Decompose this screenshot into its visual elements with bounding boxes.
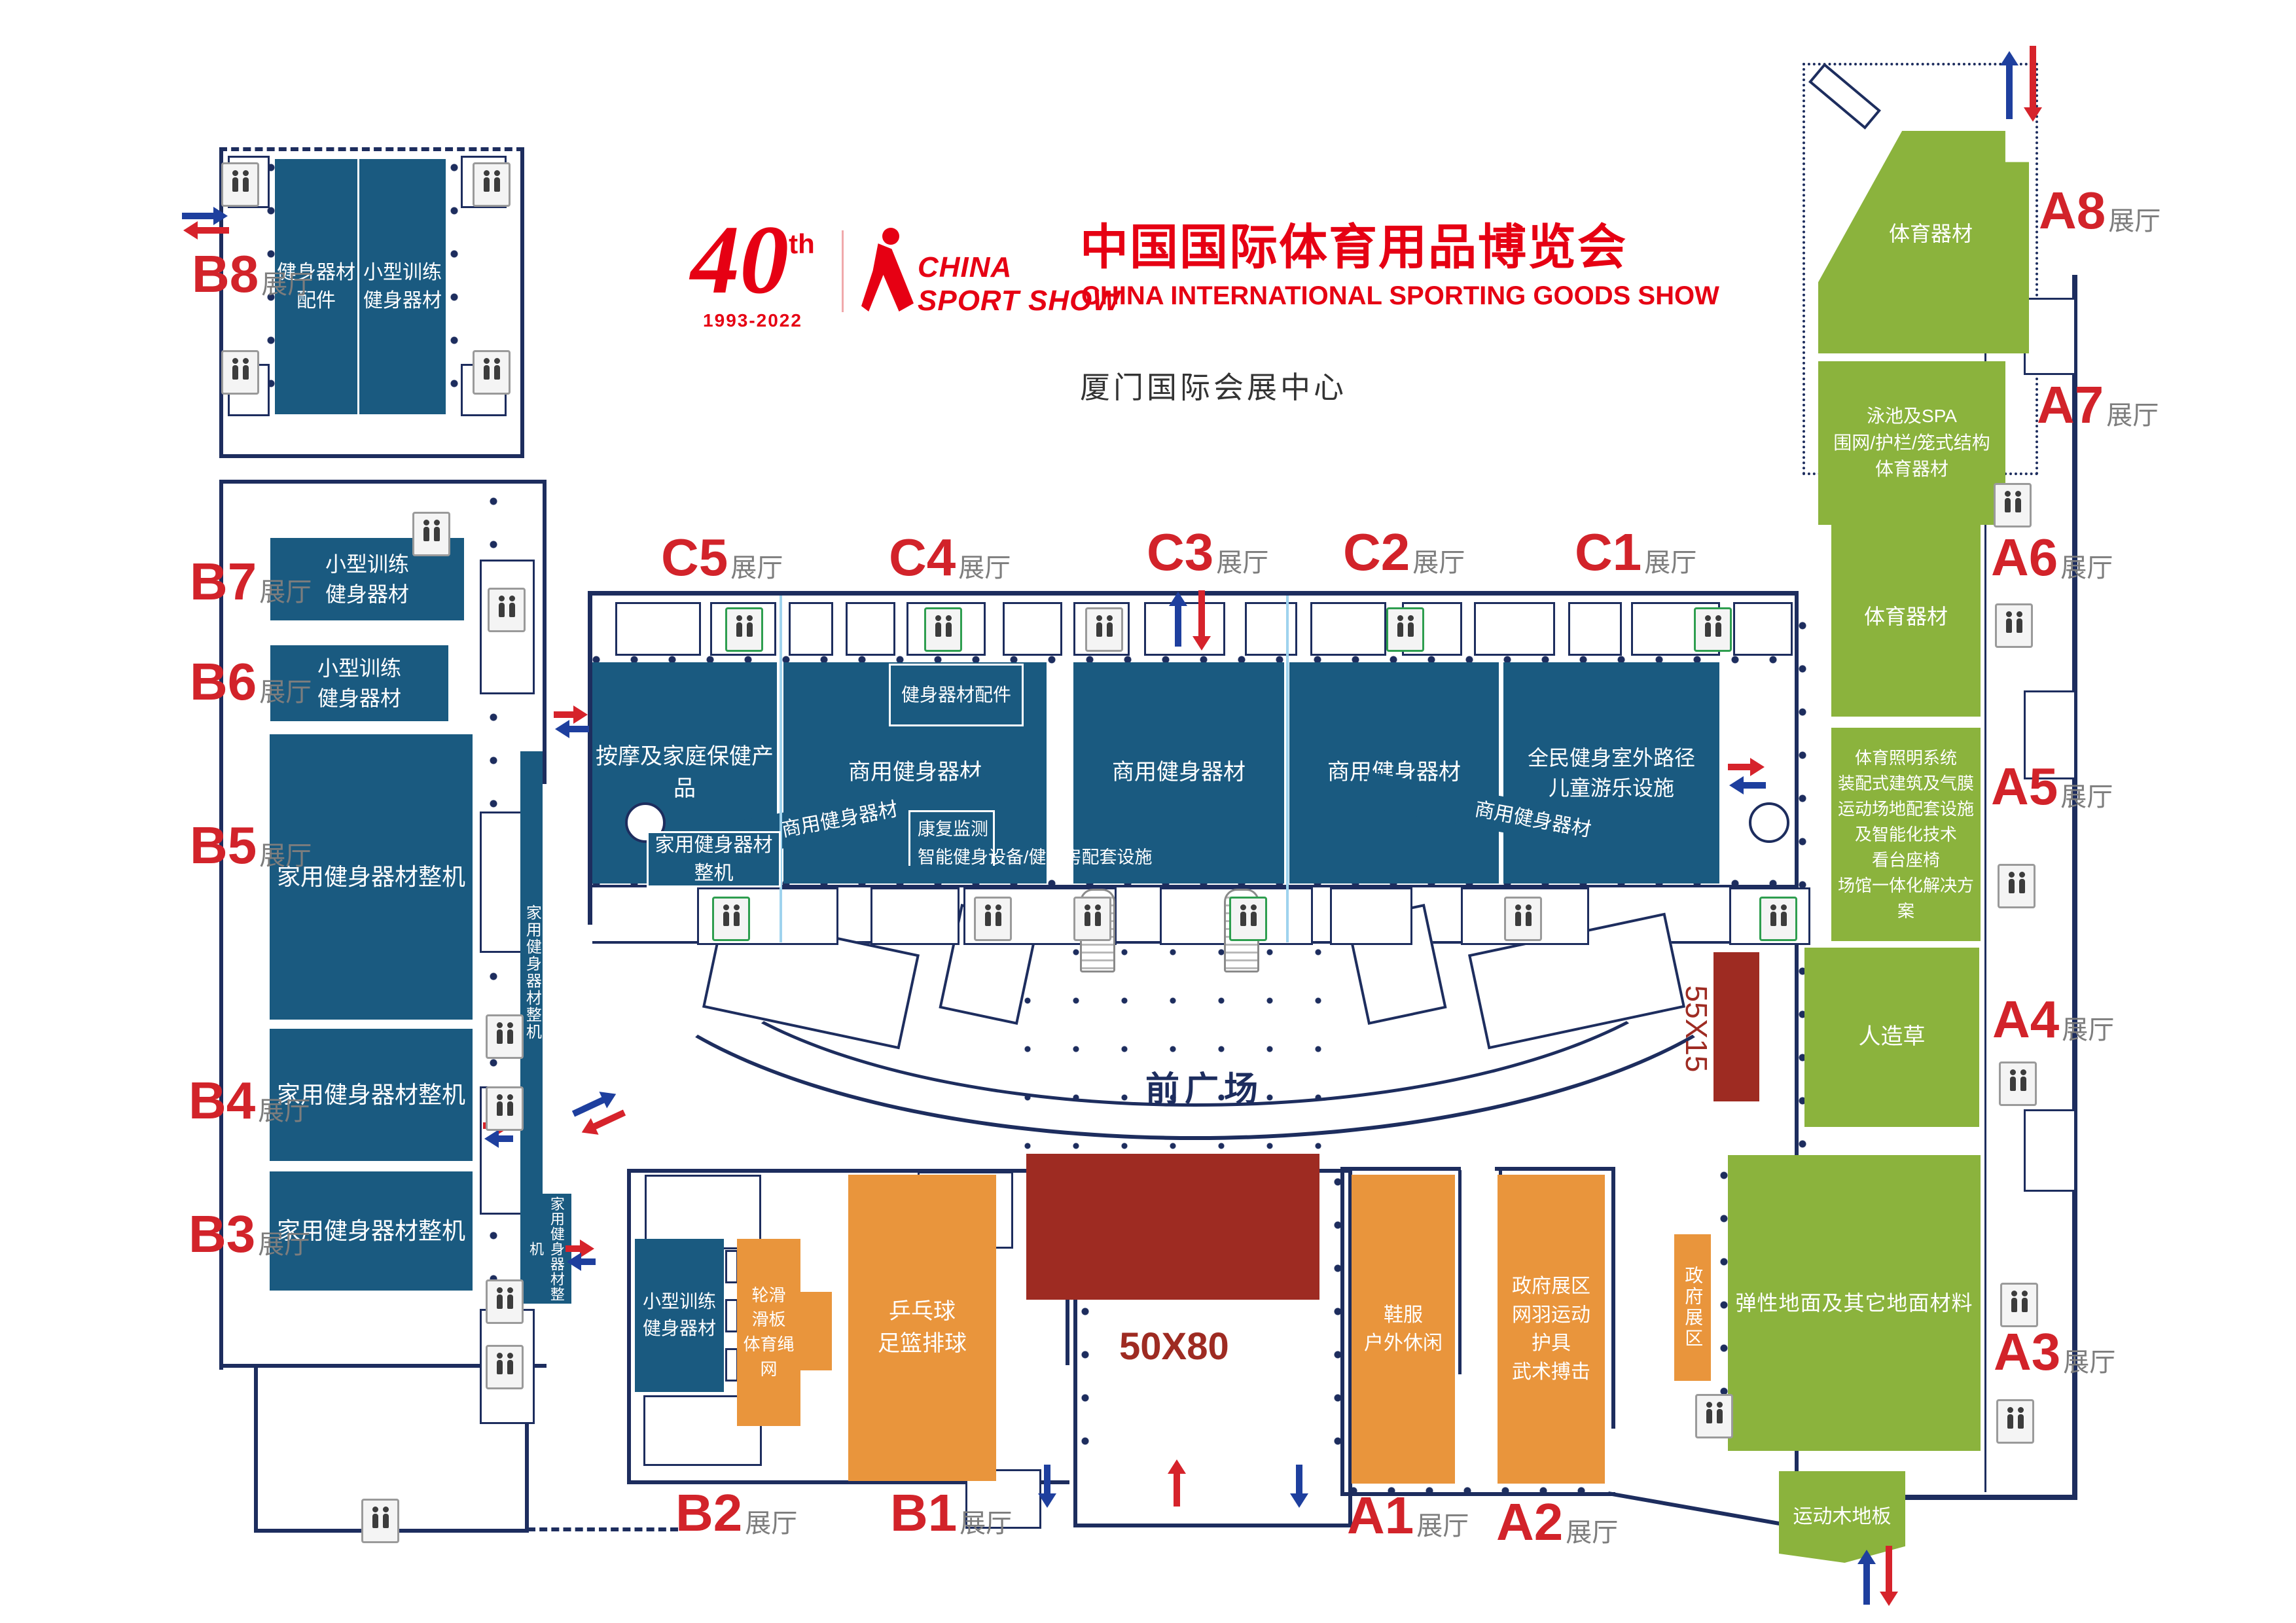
restroom-icon bbox=[221, 162, 259, 207]
stage-50x80 bbox=[1026, 1154, 1319, 1300]
logo-divider bbox=[842, 230, 844, 312]
hall-suffix: 展厅 bbox=[2060, 556, 2113, 580]
zone-c5-home-fitness-sub: 家用健身器材整机 bbox=[647, 831, 781, 887]
corridor-room bbox=[2024, 298, 2076, 375]
hall-suffix: 展厅 bbox=[1644, 551, 1696, 575]
restroom-icon bbox=[1694, 607, 1732, 652]
restroom-icon bbox=[486, 1086, 524, 1131]
stage-55x15 bbox=[1713, 952, 1759, 1101]
hall-label-b2: B2展厅 bbox=[675, 1491, 797, 1535]
hall-suffix: 展厅 bbox=[1216, 551, 1268, 575]
b-annex-left-wall bbox=[254, 1368, 258, 1533]
restroom-icon bbox=[1998, 864, 2036, 908]
b-building-right-wall bbox=[543, 480, 547, 784]
restroom-icon bbox=[1759, 897, 1797, 941]
zone-c4-rehab-sub-label: 康复监测 智能健身设备/健身房配套设施 bbox=[918, 815, 1199, 872]
b8-top-dashed-wall bbox=[219, 147, 524, 151]
hall-code: C4 bbox=[889, 535, 956, 580]
hall-suffix: 展厅 bbox=[258, 1099, 310, 1123]
hall-label-c3: C3展厅 bbox=[1147, 530, 1268, 575]
a12-corridor-wall-left bbox=[1458, 1170, 1462, 1374]
hall-label-b4: B4展厅 bbox=[188, 1079, 310, 1123]
hall-label-b7: B7展厅 bbox=[190, 560, 312, 604]
b8-right-wall bbox=[520, 151, 524, 458]
entrance-arrow-icon bbox=[573, 1094, 616, 1114]
hall-suffix: 展厅 bbox=[259, 580, 312, 604]
restroom-icon bbox=[221, 350, 259, 395]
hall-suffix: 展厅 bbox=[2106, 404, 2159, 427]
hall-suffix: 展厅 bbox=[261, 273, 314, 296]
restroom-icon bbox=[2000, 1283, 2038, 1327]
b-annex-dashed-link bbox=[528, 1527, 678, 1531]
hall-suffix: 展厅 bbox=[2063, 1351, 2115, 1374]
hall-label-b6: B6展厅 bbox=[190, 660, 312, 704]
hall-label-c2: C2展厅 bbox=[1343, 530, 1465, 575]
hall-label-b1: B1展厅 bbox=[890, 1491, 1012, 1535]
china-sport-show-figure-icon bbox=[857, 228, 916, 314]
hall-code: C2 bbox=[1343, 530, 1410, 575]
hall-code: A7 bbox=[2037, 383, 2104, 427]
zone-b2-skating-ropes-ext bbox=[800, 1292, 832, 1370]
hall-code: A4 bbox=[1992, 997, 2059, 1042]
page-title: 中国国际体育用品博览会 bbox=[1080, 208, 1761, 278]
corridor-room bbox=[615, 602, 701, 656]
restroom-icon bbox=[486, 1279, 524, 1324]
southeast-slanted-wall bbox=[1608, 1491, 1802, 1529]
zone-a5-lighting-venue-solutions: 体育照明系统 装配式建筑及气膜 运动场地配套设施 及智能化技术 看台座椅 场馆一… bbox=[1831, 728, 1981, 941]
hall-suffix: 展厅 bbox=[730, 556, 783, 580]
restroom-icon bbox=[1073, 897, 1111, 941]
restroom-icon bbox=[1386, 607, 1424, 652]
hall-code: A1 bbox=[1347, 1493, 1414, 1538]
zone-a7-pool-spa-fencing: 泳池及SPA 围网/护栏/笼式结构 体育器材 bbox=[1818, 361, 2005, 525]
logo-40-number: 40 bbox=[691, 205, 789, 314]
hall-label-a1: A1展厅 bbox=[1347, 1493, 1469, 1538]
zone-a4-artificial-turf: 人造草 bbox=[1804, 948, 1979, 1127]
column-circle-icon bbox=[1749, 802, 1789, 843]
wall-slot bbox=[725, 1250, 738, 1283]
exhibition-floorplan: 40th 1993-2022 CHINA SPORT SHOW 中国国际体育用品… bbox=[0, 0, 2296, 1623]
b1-column-dots-right bbox=[1334, 1178, 1342, 1453]
restroom-icon bbox=[974, 897, 1012, 941]
a12-right-wall bbox=[1611, 1167, 1615, 1429]
hall-suffix: 展厅 bbox=[1416, 1514, 1469, 1538]
hall-suffix: 展厅 bbox=[2108, 209, 2161, 233]
page-subtitle: CHINA INTERNATIONAL SPORTING GOODS SHOW bbox=[1081, 281, 1762, 311]
corridor-room bbox=[645, 1175, 761, 1249]
restroom-icon bbox=[1995, 603, 2033, 648]
plaza-column-grid-dots bbox=[1024, 949, 1352, 1158]
restroom-icon bbox=[486, 1014, 524, 1059]
restroom-icon bbox=[488, 588, 526, 632]
venue-name: 厦门国际会展中心 bbox=[1080, 364, 1347, 407]
hall-code: A6 bbox=[1991, 535, 2058, 580]
hall-label-b3: B3展厅 bbox=[188, 1212, 310, 1257]
b1-bottom-wall bbox=[1073, 1524, 1355, 1527]
hall-suffix: 展厅 bbox=[259, 844, 312, 868]
restroom-icon bbox=[1996, 1399, 2034, 1444]
hall-code: B6 bbox=[190, 660, 257, 704]
a2-top-wall bbox=[1495, 1167, 1615, 1171]
corridor-room bbox=[789, 602, 833, 656]
corridor-room bbox=[1245, 602, 1297, 656]
restroom-icon bbox=[1504, 897, 1542, 941]
hall-label-c5: C5展厅 bbox=[661, 535, 783, 580]
hall-code: A5 bbox=[1991, 764, 2058, 809]
exit-arrow-icon bbox=[582, 1113, 624, 1132]
b8-column-dots-right bbox=[450, 164, 458, 412]
hall-code: C1 bbox=[1575, 530, 1641, 575]
front-square-label: 前广场 bbox=[1145, 1061, 1263, 1111]
c-building-left-wall bbox=[588, 591, 592, 925]
zone-c2-commercial-fitness: 商用健身器材 bbox=[1289, 662, 1499, 883]
corridor-room bbox=[1310, 602, 1386, 656]
b8-bottom-wall bbox=[219, 454, 524, 458]
corridor-room bbox=[870, 887, 960, 945]
hall-code: A8 bbox=[2039, 188, 2106, 233]
b-building-top-wall bbox=[219, 480, 547, 484]
hall-suffix: 展厅 bbox=[958, 556, 1011, 580]
zone-a2-government-martial: 政府展区 网羽运动 护具 武术搏击 bbox=[1498, 1175, 1605, 1484]
hall-label-b8: B8展厅 bbox=[192, 252, 314, 296]
hall-label-c1: C1展厅 bbox=[1575, 530, 1696, 575]
hall-label-a7: A7展厅 bbox=[2037, 383, 2159, 427]
corridor-room bbox=[1568, 602, 1622, 656]
restroom-icon bbox=[1229, 897, 1267, 941]
b2-left-wall bbox=[627, 1169, 631, 1482]
restroom-icon bbox=[712, 897, 750, 941]
restroom-icon bbox=[361, 1499, 399, 1543]
wall-slot bbox=[725, 1299, 738, 1332]
restroom-icon bbox=[486, 1345, 524, 1389]
hall-code: C5 bbox=[661, 535, 728, 580]
corridor-room bbox=[1330, 887, 1412, 945]
hall-label-a8: A8展厅 bbox=[2039, 188, 2161, 233]
zone-c4-accessories-sub: 健身器材配件 bbox=[889, 664, 1024, 726]
zone-a3-elastic-flooring: 弹性地面及其它地面材料 bbox=[1728, 1155, 1981, 1451]
wall-slot bbox=[725, 1348, 738, 1382]
hall-separator-line bbox=[1286, 596, 1289, 942]
zone-government-strip: 政府展区 bbox=[1674, 1234, 1711, 1381]
hall-code: A3 bbox=[1994, 1330, 2060, 1374]
hall-label-a6: A6展厅 bbox=[1991, 535, 2113, 580]
hall-label-b5: B5展厅 bbox=[190, 823, 312, 868]
hall-suffix: 展厅 bbox=[2062, 1018, 2114, 1042]
a1-top-wall bbox=[1340, 1167, 1461, 1171]
hall-suffix: 展厅 bbox=[960, 1512, 1012, 1535]
hall-label-a4: A4展厅 bbox=[1992, 997, 2114, 1042]
hall-label-a2: A2展厅 bbox=[1496, 1500, 1618, 1544]
restroom-icon bbox=[1999, 1061, 2037, 1106]
zone-strip-home-fitness-1: 家用健身器材整机 bbox=[520, 751, 543, 1194]
c-building-top-wall bbox=[588, 591, 1799, 596]
hall-suffix: 展厅 bbox=[745, 1512, 797, 1535]
corridor-room bbox=[2024, 1109, 2076, 1192]
hall-separator-line bbox=[780, 596, 782, 942]
hall-code: B3 bbox=[188, 1212, 255, 1257]
hall-code: A2 bbox=[1496, 1500, 1563, 1544]
hall-suffix: 展厅 bbox=[1412, 551, 1465, 575]
restroom-icon bbox=[473, 350, 511, 395]
restroom-icon bbox=[1695, 1394, 1733, 1438]
hall-suffix: 展厅 bbox=[259, 681, 312, 704]
corridor-room bbox=[1003, 602, 1062, 656]
zone-a6-sports-equipment: 体育器材 bbox=[1831, 517, 1981, 717]
restroom-icon bbox=[924, 607, 962, 652]
zone-b5-home-fitness: 家用健身器材整机 bbox=[270, 734, 473, 1020]
corridor-room bbox=[1733, 602, 1793, 656]
restroom-icon bbox=[473, 162, 511, 207]
strip-size-label: 55X15 bbox=[1679, 954, 1714, 1104]
zone-a8-label: 体育器材 bbox=[1862, 217, 2000, 247]
hall-suffix: 展厅 bbox=[258, 1233, 310, 1257]
zone-strip-home-fitness-2: 家用健身器材整机 bbox=[520, 1194, 571, 1304]
corridor-room bbox=[846, 602, 895, 656]
a-building-right-wall bbox=[2072, 275, 2077, 1500]
hall-code: B1 bbox=[890, 1491, 957, 1535]
hall-suffix: 展厅 bbox=[1566, 1521, 1618, 1544]
anniversary-40th-logo: 40th 1993-2022 bbox=[674, 211, 831, 331]
hall-code: B4 bbox=[188, 1079, 255, 1123]
stage-size-label: 50X80 bbox=[1119, 1325, 1229, 1368]
hall-label-c4: C4展厅 bbox=[889, 535, 1011, 580]
zone-b2-small-training: 小型训练 健身器材 bbox=[635, 1239, 724, 1392]
zone-b2-skating-ropes: 轮滑 滑板 体育绳网 bbox=[737, 1239, 800, 1426]
restroom-icon bbox=[412, 512, 450, 556]
zone-b8-small-training: 小型训练 健身器材 bbox=[359, 159, 446, 414]
hall-code: B7 bbox=[190, 560, 257, 604]
hall-code: B8 bbox=[192, 252, 259, 296]
hall-suffix: 展厅 bbox=[2060, 785, 2113, 809]
logo-40-sup: th bbox=[789, 228, 815, 259]
restroom-icon bbox=[725, 607, 763, 652]
zone-a1-footwear-outdoor: 鞋服 户外休闲 bbox=[1352, 1175, 1455, 1484]
corridor-room bbox=[1474, 602, 1555, 656]
corridor-room bbox=[1144, 602, 1225, 656]
hall-label-a3: A3展厅 bbox=[1994, 1330, 2115, 1374]
restroom-icon bbox=[1085, 607, 1123, 652]
hall-label-a5: A5展厅 bbox=[1991, 764, 2113, 809]
restroom-icon bbox=[1994, 483, 2032, 527]
hall-code: B2 bbox=[675, 1491, 742, 1535]
hall-code: C3 bbox=[1147, 530, 1213, 575]
hall-code: B5 bbox=[190, 823, 257, 868]
zone-b1-pingpong-ballsports: 乒乓球 足篮排球 bbox=[848, 1175, 996, 1481]
